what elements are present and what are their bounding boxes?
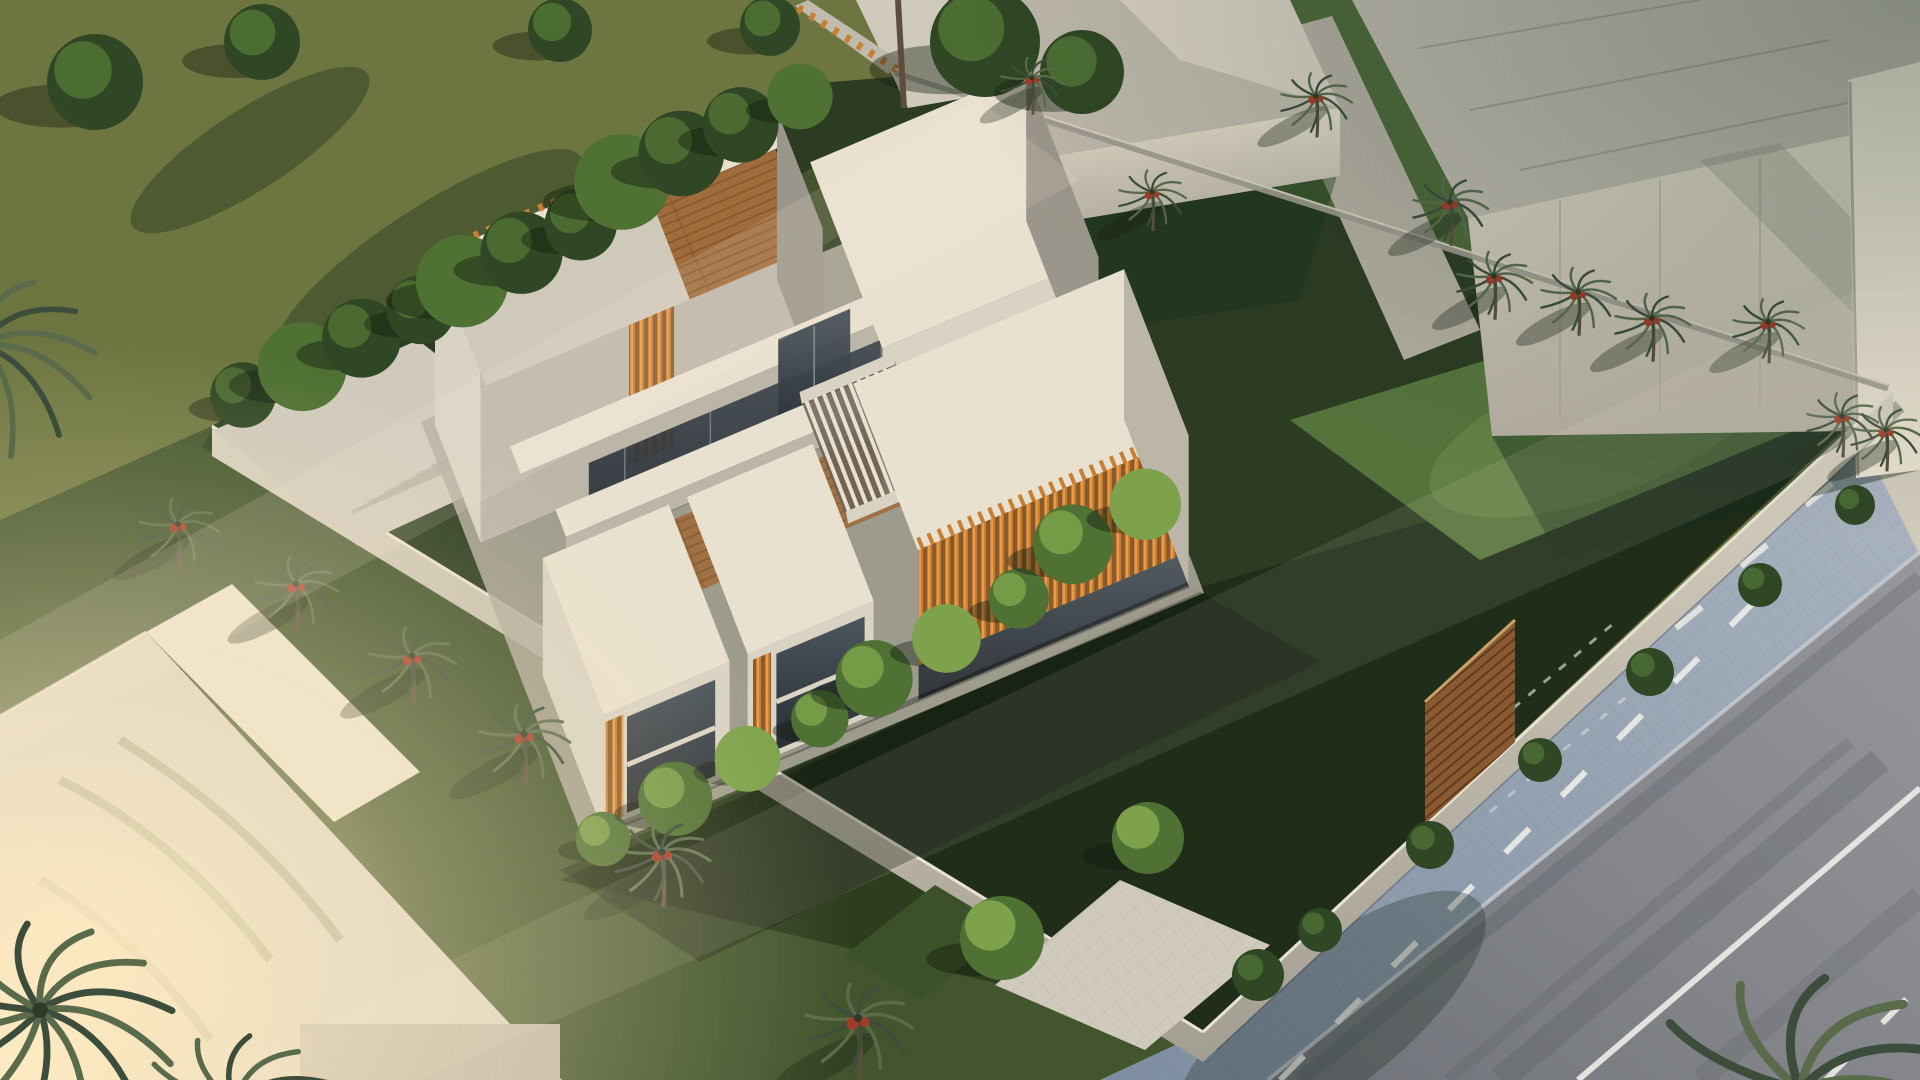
- aerial-villa-render: [0, 0, 1920, 1080]
- bright-tree-highlight: [1116, 806, 1159, 849]
- bush-highlight: [1522, 742, 1544, 764]
- bush-highlight: [1631, 653, 1655, 677]
- hedge-tree-highlight: [772, 69, 808, 105]
- bush-highlight: [1411, 826, 1435, 850]
- hedge-tree-highlight: [841, 646, 883, 688]
- palm-crown-center: [854, 1014, 862, 1022]
- bright-tree-highlight: [965, 900, 1015, 950]
- park-tree-highlight: [533, 3, 571, 41]
- hedge-tree-highlight: [917, 609, 955, 647]
- park-tree-highlight: [230, 10, 276, 56]
- palm-crown-center: [32, 1002, 48, 1018]
- render-viewport: [0, 0, 1920, 1080]
- hedge-tree-highlight: [993, 573, 1026, 606]
- bush-highlight: [1742, 567, 1764, 589]
- bush-highlight: [1302, 912, 1324, 934]
- hedge-tree-highlight: [709, 93, 751, 135]
- park-tree-highlight: [745, 1, 781, 37]
- park-tree-highlight: [54, 41, 112, 99]
- cool-corner-grade: [960, 0, 1920, 540]
- bush-highlight: [1237, 954, 1263, 980]
